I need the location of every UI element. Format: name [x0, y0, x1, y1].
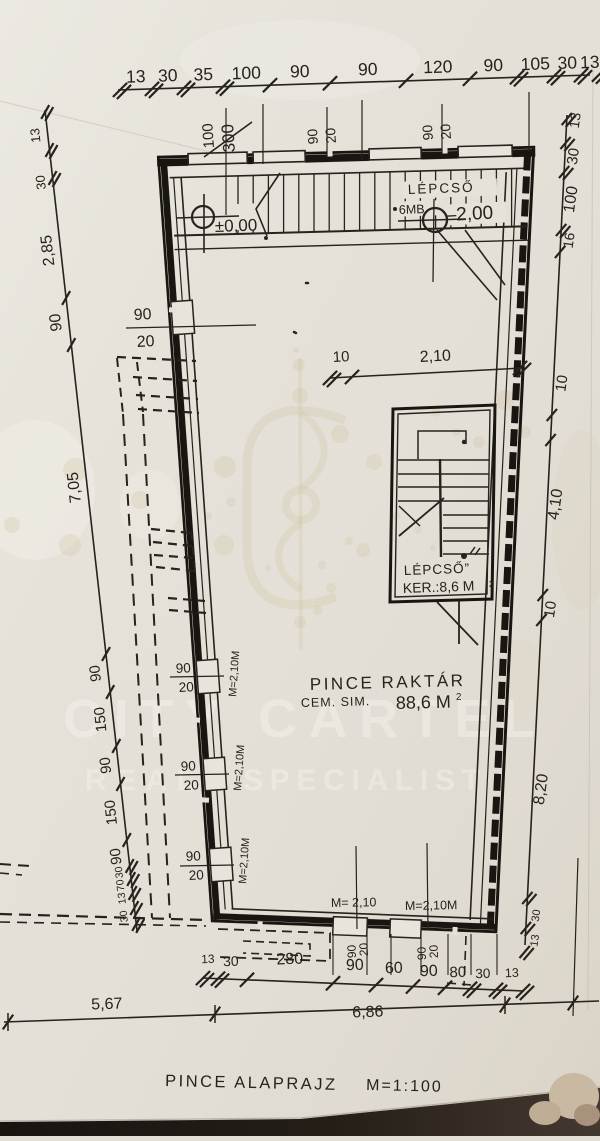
svg-text:20: 20: [178, 679, 194, 695]
svg-text:90: 90: [419, 124, 436, 141]
svg-text:20: 20: [188, 867, 204, 883]
svg-text:90: 90: [86, 664, 105, 682]
svg-text:2: 2: [456, 692, 462, 703]
svg-text:90: 90: [304, 128, 321, 145]
svg-text:90: 90: [175, 660, 191, 676]
svg-text:KER.:8,6 M: KER.:8,6 M: [403, 578, 475, 596]
svg-text:100: 100: [231, 62, 261, 83]
svg-text:105: 105: [520, 53, 550, 74]
svg-text:13: 13: [528, 934, 542, 948]
svg-text:280: 280: [276, 951, 303, 969]
svg-text:30: 30: [530, 909, 544, 923]
svg-text:16: 16: [560, 231, 578, 249]
svg-text:13: 13: [201, 952, 215, 966]
svg-text:70: 70: [114, 879, 127, 892]
svg-text:30: 30: [118, 910, 131, 923]
svg-text:20: 20: [437, 123, 454, 140]
svg-text:2,10: 2,10: [419, 347, 451, 366]
svg-text:30: 30: [557, 52, 577, 73]
svg-text:13: 13: [126, 66, 146, 87]
svg-text:90: 90: [47, 313, 66, 333]
svg-text:6MB: 6MB: [399, 202, 425, 217]
svg-text:20: 20: [136, 333, 155, 351]
svg-text:LÉPCSŐ: LÉPCSŐ: [408, 180, 475, 197]
svg-text:10: 10: [541, 600, 560, 619]
svg-text:10: 10: [332, 348, 350, 366]
svg-text:30: 30: [32, 174, 48, 190]
svg-text:20: 20: [183, 777, 199, 793]
svg-text:10: 10: [552, 374, 571, 393]
svg-text:7,05: 7,05: [65, 471, 85, 504]
svg-text:30: 30: [475, 966, 491, 982]
svg-text:30: 30: [158, 65, 178, 86]
svg-text:±0,00: ±0,00: [214, 216, 257, 236]
svg-text:13: 13: [116, 892, 129, 905]
svg-text:6,86: 6,86: [352, 1003, 384, 1021]
svg-text:5,67: 5,67: [91, 995, 123, 1013]
svg-text:120: 120: [423, 56, 453, 77]
svg-text:M= 2,10: M= 2,10: [331, 895, 377, 910]
svg-text:100: 100: [199, 123, 218, 149]
svg-text:13: 13: [505, 966, 519, 980]
svg-text:2: 2: [489, 579, 494, 589]
svg-text:90: 90: [420, 963, 438, 981]
svg-text:80: 80: [449, 964, 466, 982]
svg-text:13: 13: [580, 52, 600, 73]
svg-text:LÉPCSŐ”: LÉPCSŐ”: [404, 561, 471, 578]
svg-text:M=2,10M: M=2,10M: [405, 898, 458, 913]
svg-text:60: 60: [385, 960, 403, 978]
svg-text:90: 90: [97, 756, 116, 774]
svg-text:M=1:100: M=1:100: [366, 1077, 443, 1096]
svg-text:90: 90: [483, 55, 503, 76]
svg-text:13: 13: [27, 127, 43, 143]
svg-text:90: 90: [107, 847, 126, 865]
svg-text:90: 90: [133, 306, 152, 324]
svg-text:90: 90: [358, 59, 378, 80]
svg-text:CEM. SIM.: CEM. SIM.: [301, 694, 371, 710]
svg-text:300: 300: [218, 123, 239, 153]
svg-text:90: 90: [290, 61, 310, 82]
svg-text:90: 90: [180, 758, 196, 774]
svg-text:2,85: 2,85: [38, 234, 58, 267]
svg-text:90: 90: [346, 957, 364, 975]
svg-text:–2,00: –2,00: [445, 203, 494, 226]
svg-text:20: 20: [322, 127, 339, 144]
svg-text:30: 30: [113, 866, 126, 879]
svg-text:35: 35: [193, 64, 213, 85]
svg-text:150: 150: [101, 799, 121, 826]
svg-text:20: 20: [357, 942, 371, 956]
svg-text:30: 30: [564, 147, 583, 166]
svg-text:20: 20: [427, 944, 441, 958]
svg-text:150: 150: [91, 706, 111, 733]
svg-text:13: 13: [566, 111, 584, 129]
svg-text:88,6 M: 88,6 M: [396, 692, 452, 713]
svg-text:30: 30: [223, 953, 239, 970]
svg-text:90: 90: [185, 848, 201, 864]
